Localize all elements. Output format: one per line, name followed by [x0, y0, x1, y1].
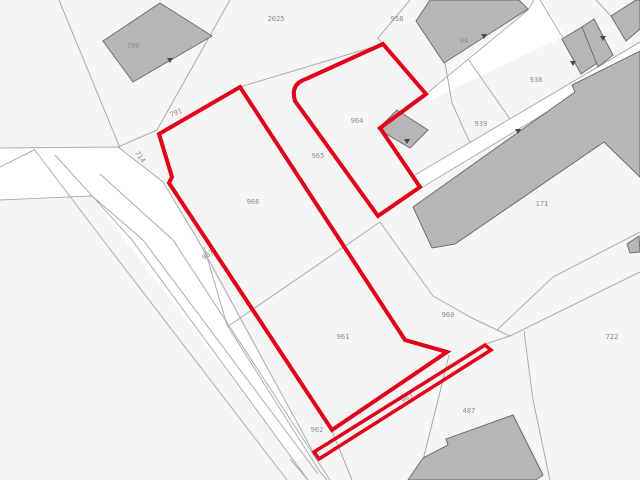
parcel-label-722: 722: [606, 333, 619, 341]
parcel-label-790: 790: [127, 42, 140, 50]
parcel-label-938: 938: [530, 76, 543, 84]
parcel-label-939: 939: [475, 120, 488, 128]
parcel-label-961: 961: [337, 333, 350, 341]
parcel-label-958: 958: [391, 15, 404, 23]
parcel-label-487: 487: [463, 407, 476, 415]
parcel-label-966: 966: [247, 198, 260, 206]
parcel-label-2025: 2025: [268, 15, 285, 23]
parcel-label-171: 171: [536, 200, 549, 208]
cadastral-map: 7902025958949389399649659669679619609629…: [0, 0, 640, 480]
parcel-label-964: 964: [351, 117, 364, 125]
map-viewport: 7902025958949389399649659669679619609629…: [0, 0, 640, 480]
parcel-label-965: 965: [312, 152, 325, 160]
parcel-label-962: 962: [311, 426, 324, 434]
parcel-label-94: 94: [460, 37, 468, 45]
parcel-label-960: 960: [442, 311, 455, 319]
